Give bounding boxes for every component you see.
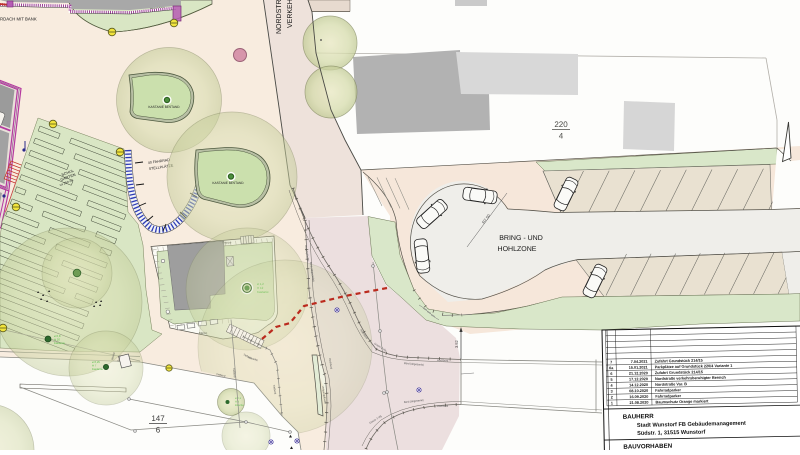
svg-text:Hochbord: Hochbord bbox=[437, 405, 449, 408]
svg-text:Kirsche: Kirsche bbox=[235, 404, 244, 407]
svg-text:BAUVORHABEN: BAUVORHABEN bbox=[623, 443, 672, 450]
svg-text:21.08.2020: 21.08.2020 bbox=[629, 401, 648, 405]
svg-text:3: 3 bbox=[611, 390, 613, 394]
svg-text:NORDSTRASSE: NORDSTRASSE bbox=[276, 0, 283, 34]
svg-text:15.01.2021: 15.01.2021 bbox=[629, 365, 648, 369]
svg-text:16.09.2020: 16.09.2020 bbox=[629, 395, 648, 399]
svg-text:7: 7 bbox=[610, 360, 612, 364]
svg-text:3.52: 3.52 bbox=[454, 339, 459, 348]
svg-text:KASTANIE BESTAND: KASTANIE BESTAND bbox=[148, 105, 180, 109]
svg-text:7.04.2021: 7.04.2021 bbox=[631, 360, 648, 364]
svg-text:HOHLZONE: HOHLZONE bbox=[498, 246, 537, 253]
svg-text:220: 220 bbox=[554, 120, 568, 129]
svg-text:6: 6 bbox=[610, 372, 612, 376]
svg-text:21.12.2020: 21.12.2020 bbox=[629, 371, 648, 375]
svg-text:5: 5 bbox=[610, 378, 612, 382]
svg-text:Südstr. 1, 31515 Wunstorf: Südstr. 1, 31515 Wunstorf bbox=[637, 429, 706, 437]
svg-text:VERKEHRSBERUHIGTER: VERKEHRSBERUHIGTER bbox=[287, 0, 294, 28]
svg-text:14.12.2020: 14.12.2020 bbox=[629, 383, 648, 387]
svg-text:Fahrradparker: Fahrradparker bbox=[655, 388, 681, 393]
svg-text:1: 1 bbox=[611, 401, 613, 405]
svg-text:RDACH MIT BANK: RDACH MIT BANK bbox=[0, 17, 37, 22]
svg-text:KASTANIE BESTAND: KASTANIE BESTAND bbox=[212, 181, 244, 185]
svg-text:17.12.2020: 17.12.2020 bbox=[629, 377, 648, 381]
svg-text:Nordstraße Var. B: Nordstraße Var. B bbox=[655, 382, 687, 387]
svg-text:Kastanie: Kastanie bbox=[54, 341, 65, 345]
svg-text:4: 4 bbox=[559, 132, 564, 141]
svg-text:Hochbord: Hochbord bbox=[437, 359, 449, 362]
svg-text:6: 6 bbox=[156, 426, 161, 435]
svg-text:Kastanie: Kastanie bbox=[92, 367, 103, 371]
svg-text:2: 2 bbox=[611, 395, 613, 399]
svg-text:BRING - UND: BRING - UND bbox=[499, 235, 543, 242]
svg-text:08.10.2020: 08.10.2020 bbox=[629, 389, 648, 393]
svg-text:147: 147 bbox=[151, 414, 165, 423]
svg-text:BAUHERR: BAUHERR bbox=[623, 413, 655, 421]
svg-text:Fahrradparker: Fahrradparker bbox=[655, 394, 681, 399]
